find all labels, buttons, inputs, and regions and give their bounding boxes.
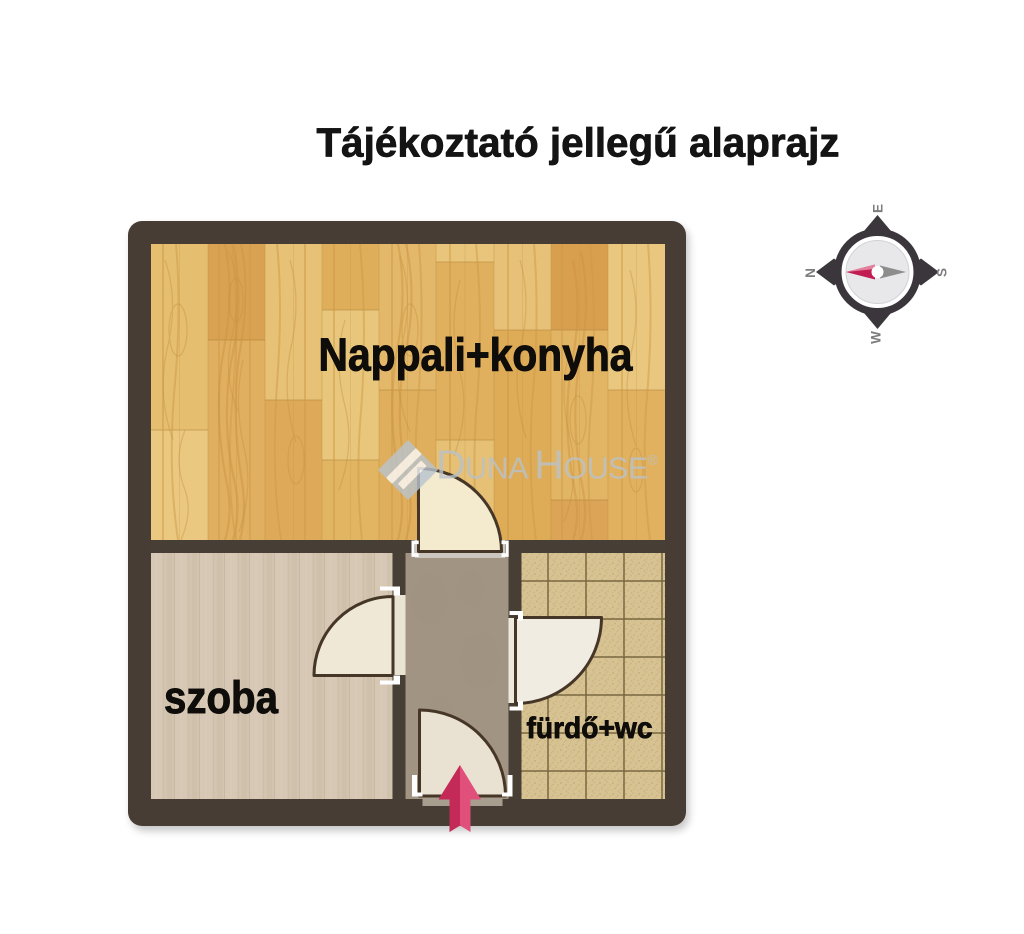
svg-text:E: E	[871, 204, 886, 213]
svg-text:N: N	[803, 268, 818, 278]
svg-text:S: S	[935, 268, 950, 277]
svg-text:Nappali+konyha: Nappali+konyha	[319, 329, 633, 381]
svg-text:Tájékoztató jellegű alaprajz: Tájékoztató jellegű alaprajz	[317, 120, 840, 166]
svg-text:szoba: szoba	[164, 672, 279, 723]
svg-text:W: W	[869, 331, 884, 344]
svg-text:fürdő+wc: fürdő+wc	[527, 712, 653, 745]
